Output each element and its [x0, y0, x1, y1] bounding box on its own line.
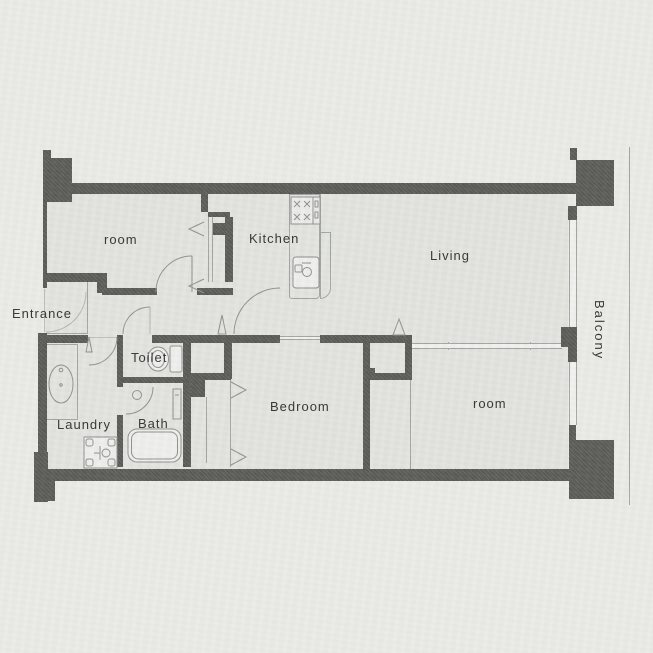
label-bath: Bath [138, 416, 169, 431]
floor-plan: room Kitchen Living Entrance Toilet Bath… [0, 0, 653, 653]
label-living: Living [430, 248, 470, 263]
label-bedroom: Bedroom [270, 399, 330, 414]
label-entrance: Entrance [12, 306, 72, 321]
stove-icon [291, 197, 320, 224]
washing-machine-icon [84, 437, 117, 468]
label-balcony: Balcony [592, 300, 607, 360]
label-room-top-left: room [104, 232, 138, 247]
fixtures-layer [0, 0, 653, 653]
label-room-bottom-right: room [473, 396, 507, 411]
vanity-basin-icon [49, 365, 73, 403]
door-leaf-icon [86, 315, 405, 352]
label-laundry: Laundry [57, 417, 111, 432]
label-kitchen: Kitchen [249, 231, 299, 246]
label-toilet: Toilet [131, 350, 167, 365]
kitchen-sink-icon [293, 257, 319, 288]
folding-door-icon [189, 222, 246, 465]
